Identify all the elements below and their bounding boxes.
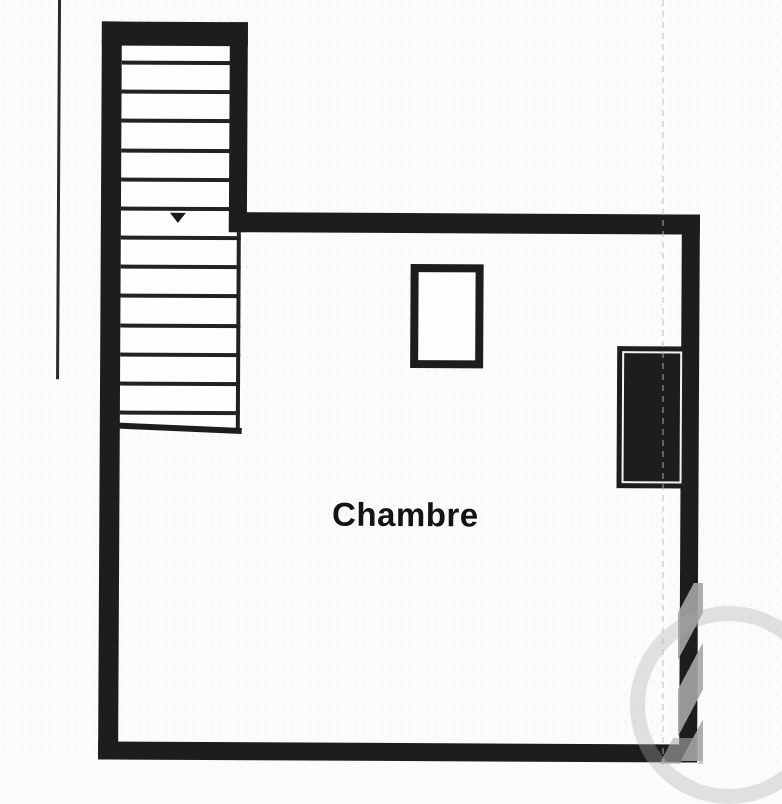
stair-treads [120,46,242,430]
stair-tread [120,324,240,329]
stair-tread [120,294,240,299]
watermark-wall-stripes [678,583,703,761]
chimney-inner-outline [622,351,683,483]
chimney-block [616,346,687,488]
stair-tread [121,149,241,154]
wall-stair-top [102,21,248,46]
stair-tread [121,236,241,241]
stair-tread [120,353,240,358]
wall-left [98,21,122,759]
stair-right-edge-line [236,232,241,431]
window-duct-rect [410,264,484,368]
room-label: Chambre [325,496,485,535]
stair-tread [120,411,240,416]
wall-bottom [98,741,697,762]
stair-tread [120,382,240,387]
stair-tread [122,61,242,66]
floorplan-canvas: Chambre [0,0,782,767]
stair-tread [121,207,241,212]
watermark-corner-stripes [655,738,703,764]
wall-stair-right [229,22,248,232]
stair-tread [121,119,241,124]
stair-center-line [56,0,61,379]
wall-room-top [229,212,700,234]
stair-tread [121,265,241,270]
stair-tread [122,90,242,95]
stair-tread [121,178,241,183]
